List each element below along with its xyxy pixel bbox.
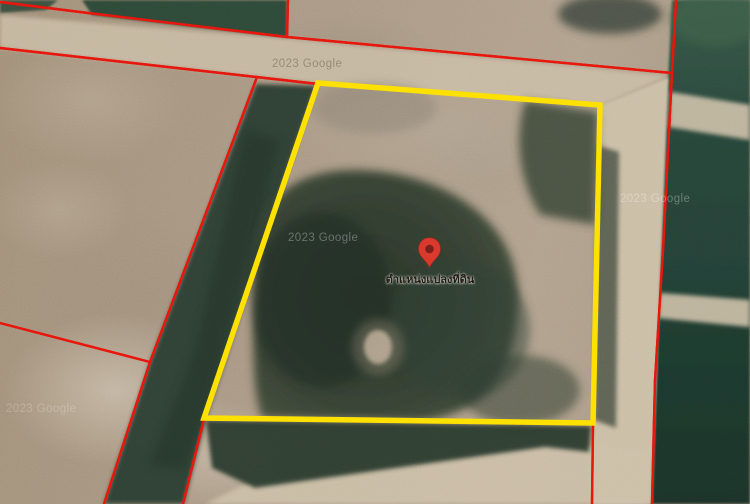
noise-texture <box>0 0 750 504</box>
pin-hole <box>425 245 434 254</box>
map-canvas[interactable]: ตำแหน่งแปลงที่ดิน 2023 Google 2023 Googl… <box>0 0 750 504</box>
satellite-overlay <box>0 0 750 504</box>
pin-label: ตำแหน่งแปลงที่ดิน <box>386 270 475 288</box>
